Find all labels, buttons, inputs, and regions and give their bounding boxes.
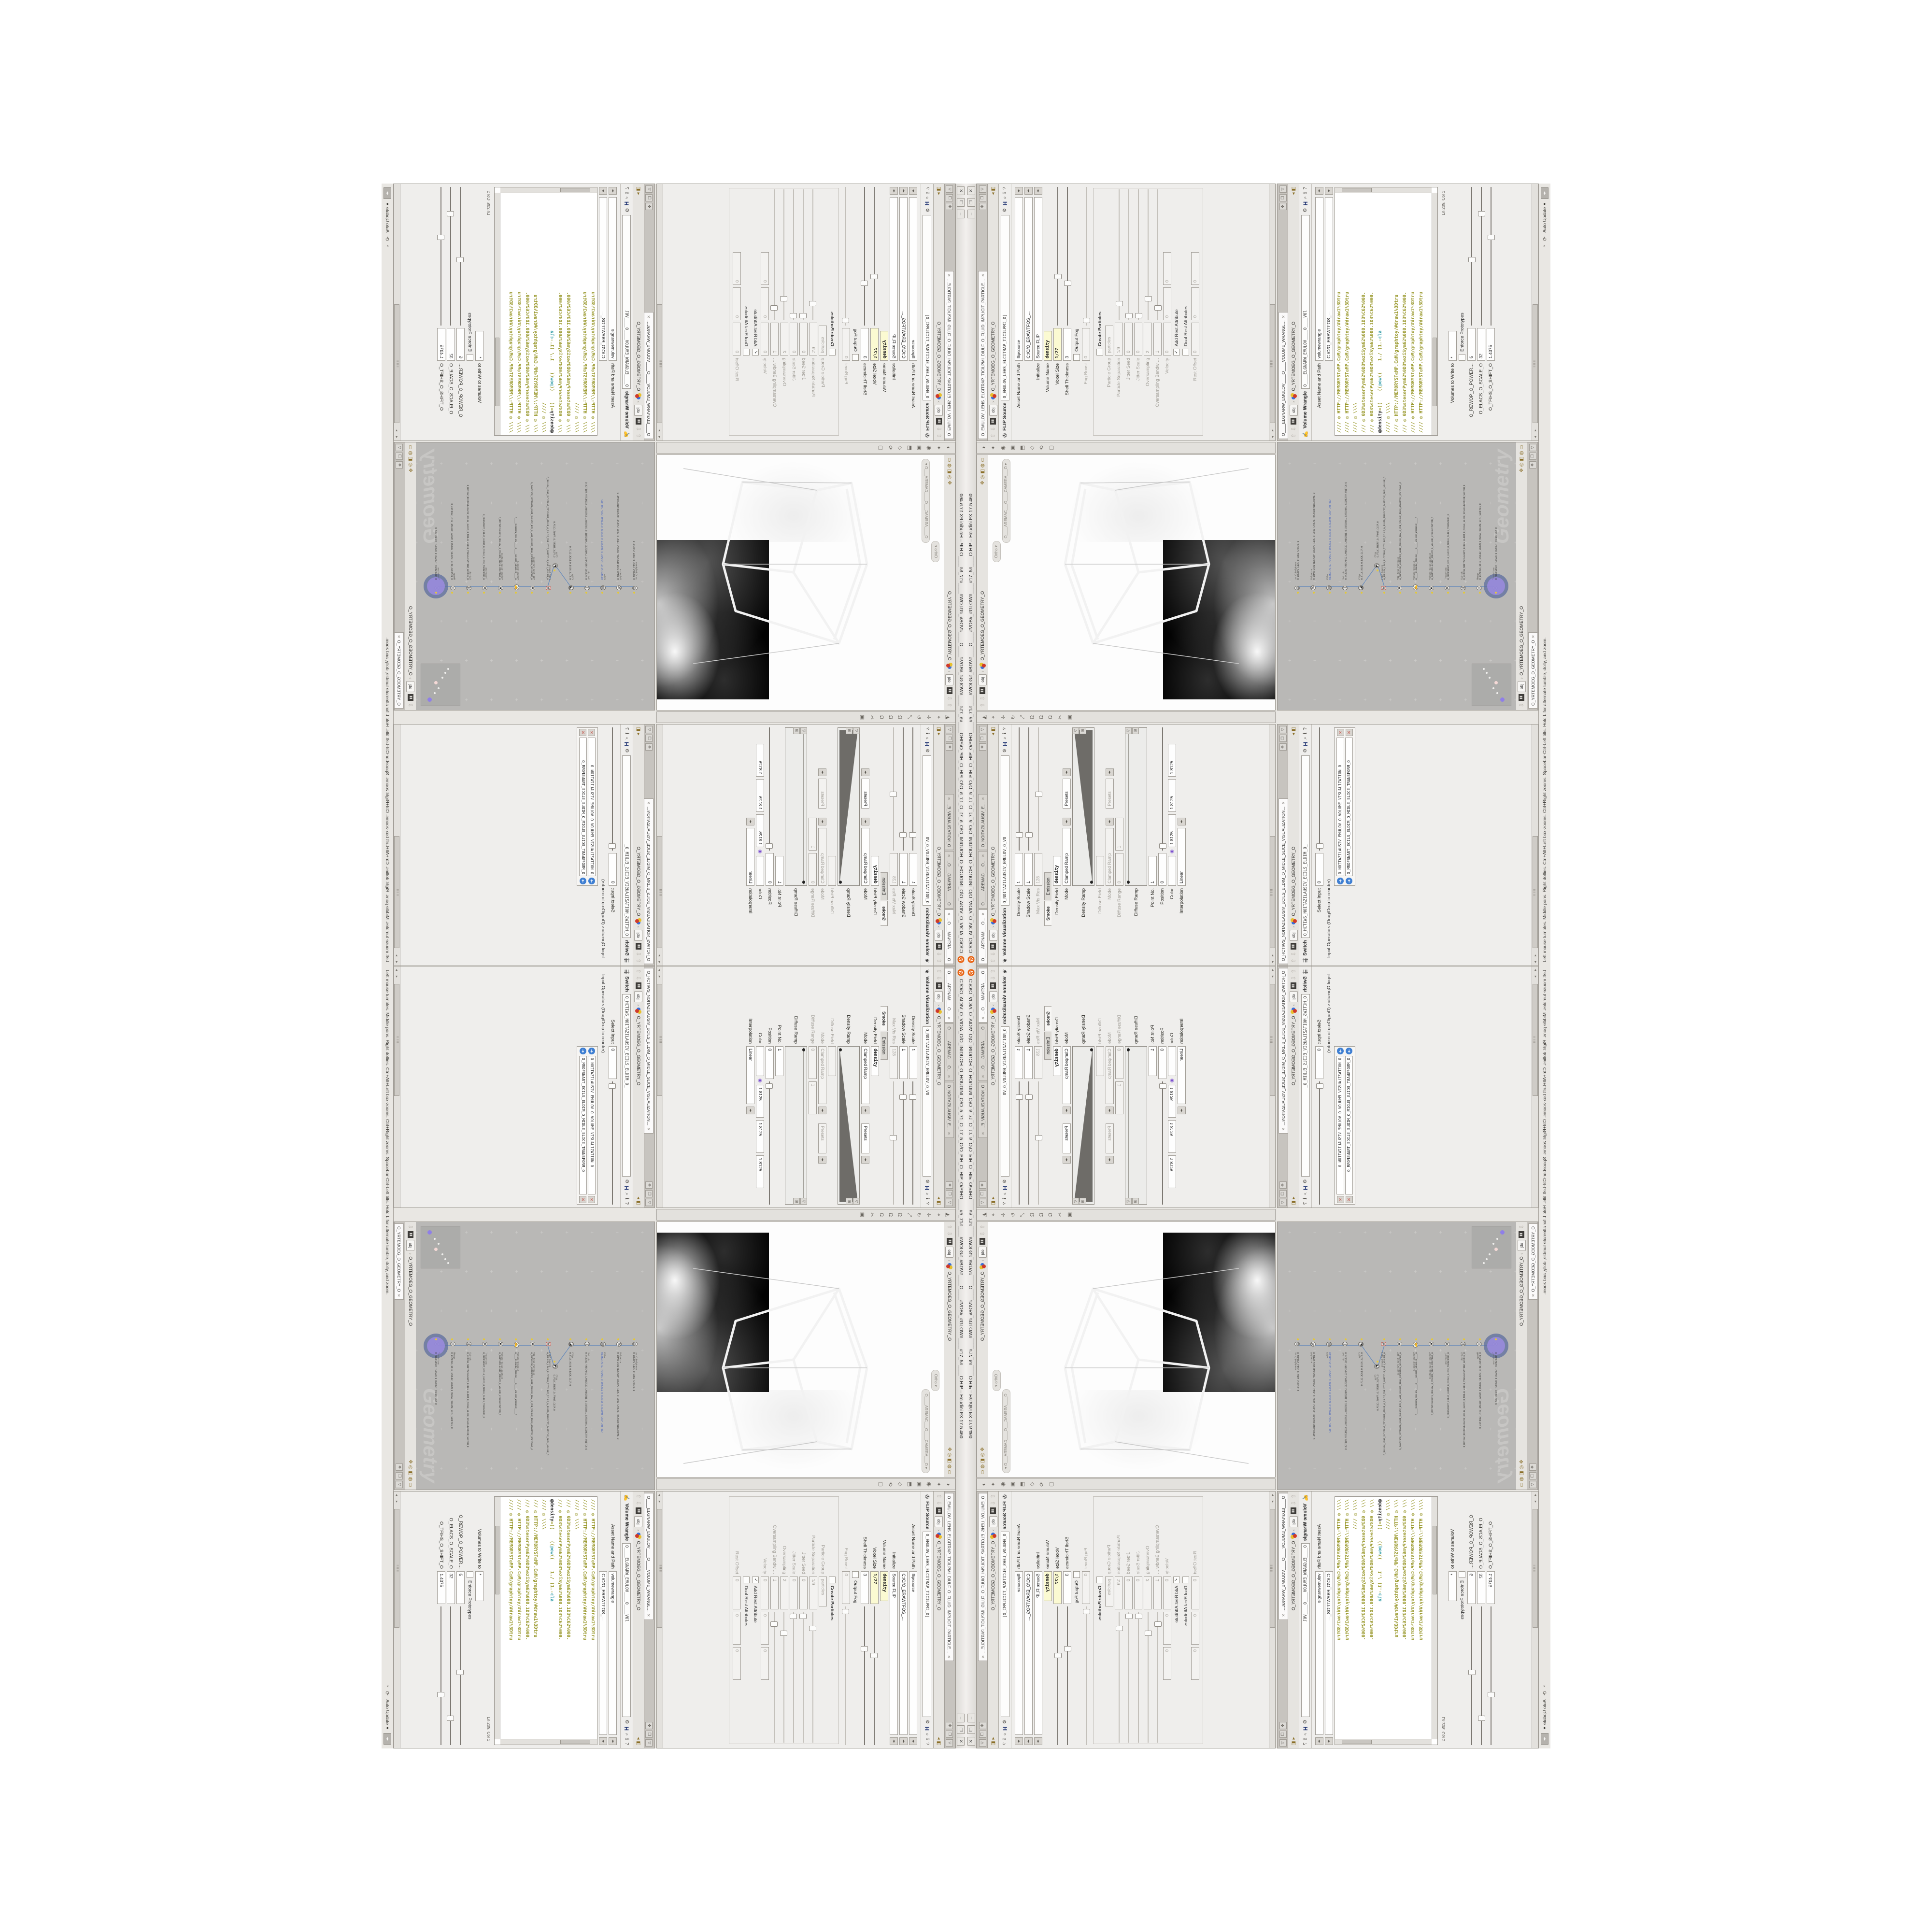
gear-icon[interactable]: ⚙ [624,208,629,213]
pane-horizontal-scrollbar[interactable]: ◂▸⠿⠿⠿ [394,966,400,1207]
color-component-field[interactable]: 1.8125 [756,1155,764,1188]
network-node[interactable]: ✇FLIP SourceO_EMULOV_LEHS_ELCITRAP_TICIL… [545,1342,552,1346]
pin-icon[interactable]: ✥ [645,743,653,751]
parameter-slider[interactable] [1135,189,1142,320]
toolbar-icon[interactable]: ✦ [990,445,996,450]
parameter-field[interactable]: 3 [1063,1571,1071,1604]
network-node[interactable]: ✇FLIP SourceO_EMULOV_LEHS_ELCITRAP_TICIL… [545,586,552,590]
parameter-field[interactable]: 1 [1115,1081,1123,1114]
nav-up-icon[interactable]: ⇧ [636,1494,641,1499]
parameter-field[interactable]: C:/O/O_ERAWTFOS_… [1325,197,1333,361]
breadcrumb-root[interactable]: obj [935,991,943,1002]
menu-pair-icon[interactable]: ◂▸ [1063,818,1071,825]
input-operator-field[interactable]: O_MROFSNART_ECILS_ELDIM_O_MIDLE_SLICE_TR… [1345,738,1353,876]
presets-menu[interactable]: Presets [861,779,869,809]
flipbook-icon[interactable]: ▮▮ [990,943,996,950]
nav-up-icon[interactable]: ⇧ [990,1494,996,1499]
tab-close-icon[interactable]: ✕ [947,854,952,857]
parameter-field[interactable]: 1 [909,853,917,886]
parameter-field[interactable]: Source FLIP [890,1571,898,1735]
flipbook-icon[interactable]: ▮▮ [980,687,985,694]
parameter-field[interactable]: Linear [1178,828,1186,886]
parameter-checkbox[interactable]: ✓ [752,349,759,355]
close-icon[interactable]: ✕ [967,186,975,195]
parameter-field[interactable]: 1 [1149,856,1157,886]
toolbar-icon[interactable]: ✛ [925,1212,932,1217]
parameter-field[interactable]: 1 [1115,818,1123,851]
pathbar-icons[interactable]: ◂◧ [937,186,942,195]
recook-icon[interactable]: ⟳ [384,1691,391,1695]
tab-close-icon[interactable]: ✕ [1531,635,1535,639]
network-toolbar-icons[interactable]: ✥◎◧◍▭ [1519,445,1524,472]
parameter-field[interactable]: 0 [1158,1046,1166,1079]
reorder-arrow-icon[interactable]: ➜ [588,1048,595,1054]
parameter-slider[interactable] [1025,727,1032,851]
recook-icon[interactable]: ⟳ [1542,1691,1548,1695]
parameter-field[interactable]: particles [1105,326,1113,355]
network-node[interactable]: ▤File8O.M03.PETS.TRI6ALS_O_55U.REG_O_GEN… [1326,585,1333,590]
menu-pair-icon[interactable]: ◂▸ [1178,818,1186,825]
node-path-field[interactable]: O_NOITAZILAUSIV_EMULOV_O_VO [923,755,932,906]
nav-up-icon[interactable]: ⇧ [1291,958,1296,963]
presets-menu[interactable]: Presets [818,779,826,809]
breadcrumb-root[interactable]: obj [635,1516,643,1527]
search-icon[interactable]: ⌕ [924,1193,930,1195]
network-node[interactable]: ❖VDB from PolygonsO_SNOGYLOP_YRTEMOEG_MO… [529,1342,536,1346]
color-component-field[interactable]: 1.8125 [1168,814,1176,847]
node-path-field[interactable]: O_HCTIWS_NOITAZILAUSIV_ECILS_ELDIM_O_ [1301,755,1310,938]
nav-up-icon[interactable]: ⇧ [1291,433,1296,438]
pane-maximize-icon[interactable]: ❒ [645,1190,653,1197]
viewport-pathbar-icons[interactable]: ✥◎◧◍▭ [947,1447,952,1475]
lamp-icon[interactable]: ◧ [937,186,942,191]
toolbar-icon[interactable]: ⌖ [991,716,997,719]
parameter-slider[interactable] [1064,187,1071,326]
parameter-field[interactable]: 0 [609,1046,617,1079]
parameter-field[interactable]: Source FLIP [1034,1571,1042,1735]
menu-pair-icon[interactable]: ◂▸ [861,768,869,776]
houdini-badge-icon[interactable]: H [1002,1186,1009,1190]
parameter-slider[interactable] [1125,1612,1132,1743]
search-icon[interactable]: ⌕ [1303,1733,1308,1736]
houdini-badge-icon[interactable]: H [1002,201,1009,206]
breadcrumb-root[interactable]: obj [979,1247,987,1258]
tab-close-icon[interactable]: ✕ [947,797,952,800]
color-wheel-icon[interactable]: ◉ [1169,850,1175,853]
pane-tab[interactable]: O____ELGNARW_EMULOV____O____VOLUME_WRANG… [1279,312,1288,439]
parameter-field[interactable]: 32 [447,328,455,361]
parameter-checkbox[interactable] [1182,349,1189,355]
parameter-field[interactable]: * [1449,1571,1457,1601]
pane-tab[interactable]: O____ELGNARW_EMULOV____O____VOLUME_WRANG… [1279,1493,1288,1620]
pane-maximize-icon[interactable]: ❒ [946,194,953,201]
breadcrumb-path[interactable]: O_YRTEMOEG_O_GEOMETRY_O [937,1541,941,1735]
ramp-buttons[interactable]: ▽⊞ [793,1198,807,1205]
breadcrumb-path[interactable]: O_YRTEMOEG_O_GEOMETRY_O [937,1016,941,1194]
menu-pair-icon[interactable]: ◂▸ [1106,1156,1114,1164]
toolbar-icon[interactable]: ▢ [878,445,884,450]
parameter-field[interactable]: Clamped Ramp [1106,1046,1114,1104]
nav-up-icon[interactable]: ⇧ [936,1494,942,1499]
pane-tab[interactable]: O_NOITAZILAUSIV_E…✕ [978,1082,987,1138]
parameter-field[interactable]: 0 [733,323,741,355]
tab-close-icon[interactable]: ✕ [647,801,651,805]
menu-pair-icon[interactable]: ◂▸ [1015,1737,1023,1745]
menu-pair-icon[interactable]: ◂▸ [818,1107,826,1114]
pane-menu-icon[interactable]: ▽ [979,726,986,733]
pane-menu-icon[interactable]: ▽ [1279,1199,1287,1206]
parameter-slider[interactable] [781,1612,788,1743]
tab-close-icon[interactable]: ✕ [981,1075,985,1078]
houdini-badge-icon[interactable]: H [624,1186,630,1190]
toolbar-icon[interactable]: ✂ [1057,715,1063,719]
nav-down-icon[interactable]: ⇩ [408,1224,413,1229]
parameter-field[interactable]: C:/O/O_ERAWTFOS_… [599,1571,607,1735]
houdini-badge-icon[interactable]: H [1302,1726,1309,1731]
lamp-icon[interactable]: ◧ [1291,1201,1296,1205]
parameter-field[interactable]: 0 [1191,1612,1199,1645]
houdini-badge-icon[interactable]: H [1002,1726,1009,1731]
parameter-checkbox[interactable] [1073,354,1080,361]
network-node[interactable]: ❦Volume VisualizationO_NOITAZILAUSIV_EMU… [1428,1342,1435,1346]
parameter-slider[interactable] [1035,1081,1042,1205]
parameter-field[interactable]: particles [1105,1577,1113,1606]
toolbar-icon[interactable]: ▣ [859,715,866,720]
gear-icon[interactable]: ⚙ [1002,1179,1008,1183]
help-icon[interactable]: ? [624,1202,629,1205]
pane-maximize-icon[interactable]: ❒ [1279,194,1287,201]
parameter-slider[interactable] [771,189,778,320]
toolbar-icon[interactable]: Ω [888,1213,894,1217]
scroll-left-icon[interactable]: ◂ [1291,1197,1296,1199]
pin-icon[interactable]: ✥ [946,743,953,751]
pathbar-icons[interactable]: ◂◧ [937,1197,942,1205]
pane-maximize-icon[interactable]: ❒ [1279,1190,1287,1197]
network-node[interactable]: ◍an CubeSphereO_EREHPS_EBUC_O_CUBE_SPHER… [1294,586,1301,590]
pane-menu-icon[interactable]: ▽ [396,1481,403,1488]
network-node[interactable]: ◪ClipO_PILC_KCAB_O_BACK_CLIP_O [1358,1342,1364,1347]
parameter-field[interactable]: Clamped Ramp [818,1046,826,1104]
pathbar-icons[interactable]: ◂◧ [636,1197,641,1205]
network-node[interactable]: ⇶SwitchO_HCTIWS_NOITAZILAUSIV_ECILS_ELDI… [465,586,472,590]
scroll-left-icon[interactable]: ◂ [1291,1737,1296,1740]
parameter-field[interactable]: 128 [1034,1046,1042,1079]
pin-icon[interactable]: ✥ [979,743,986,751]
pin-icon[interactable]: ✥ [396,461,403,469]
breadcrumb-path[interactable]: O_YRTEMOEG_O_GEOMETRY_O [980,1271,985,1445]
parameter-field[interactable]: 0 [799,1577,808,1609]
lamp-icon[interactable]: ◧ [991,727,996,731]
parameter-slider[interactable] [1154,189,1161,320]
input-operator-field[interactable]: O_NOITAZILAUSIV_EMULOV_O_VOLUME_VISUALIZ… [1336,1056,1344,1194]
gear-icon[interactable]: ⚙ [624,749,629,753]
parameter-slider[interactable] [771,1612,778,1743]
color-swatch[interactable] [756,1046,764,1076]
node-path-field[interactable]: O____ELGNARW_EMULOV____O____VOl [623,215,631,389]
toolbar-icon[interactable]: ▣ [916,445,923,450]
gear-icon[interactable]: ⚙ [1002,1719,1008,1724]
nav-down-icon[interactable]: ⇩ [990,952,996,956]
network-node[interactable]: ⌘PolyWireO_EMARFERIW_NOGYLOP_EREHPS_EBUC… [615,585,622,590]
pane-menu-icon[interactable]: ▽ [645,726,653,733]
network-node[interactable]: ❖VDB from PolygonsO_SNOGYLOP_YRTEMOEG_MO… [529,586,536,590]
parameter-slider[interactable] [891,727,897,851]
parameter-field[interactable]: C:/O/O_ERAWTFOS_… [1024,197,1033,361]
nav-down-icon[interactable]: ⇩ [1291,952,1296,956]
toolbar-icon[interactable]: ⤢ [906,1213,912,1217]
pathbar-icons[interactable]: ◂◧ [636,1737,641,1746]
parameter-field[interactable]: 1 [899,853,908,886]
pane-menu-icon[interactable]: ▽ [645,185,653,193]
menu-pair-icon[interactable]: ◂▸ [1178,1107,1186,1114]
flipbook-icon[interactable]: ▮▮ [1519,1231,1524,1238]
menu-pair-icon[interactable]: ◂▸ [1325,1737,1333,1745]
houdini-badge-icon[interactable]: H [624,742,630,746]
menu-pair-icon[interactable]: ◂▸ [746,1107,754,1114]
parameter-slider[interactable] [871,1606,878,1745]
pin-icon[interactable]: ✥ [396,1463,403,1471]
pane-menu-icon[interactable]: ▽ [946,1739,953,1747]
pane-menu-icon[interactable]: ▽ [946,1199,953,1206]
parameter-field[interactable]: 1.4375 [437,328,445,361]
scroll-left-icon[interactable]: ◂ [636,1737,641,1740]
toolbar-icon[interactable]: ✛ [1000,715,1007,719]
pathbar-icons[interactable]: ◂◧ [937,727,942,735]
parameter-field[interactable]: 0 [761,1577,769,1609]
parameter-field[interactable]: density [1053,1046,1061,1076]
breadcrumb-root[interactable]: obj [979,674,987,685]
scroll-left-icon[interactable]: ◂ [636,1197,641,1199]
parameter-field[interactable]: 0 [1191,252,1199,285]
lamp-icon[interactable]: ◧ [937,1201,942,1205]
parameter-field[interactable]: 0 [761,1647,769,1680]
help-icon[interactable]: ? [924,727,930,730]
parameter-slider[interactable] [791,1612,797,1743]
reorder-arrow-icon[interactable]: ➜ [1346,1048,1352,1054]
network-node[interactable]: ✇FLIP SourceO_EMULOV_LEHS_ELCITRAP_TICIL… [1380,586,1387,590]
pane-menu-icon[interactable]: ▽ [1279,185,1287,193]
breadcrumb-path[interactable]: O_YRTEMOEG_O_GEOMETRY_O [937,737,941,916]
pane-maximize-icon[interactable]: ❒ [979,1190,986,1197]
network-node[interactable]: ⊕MergeO_ECAFRUS_HTIW_EMULOV_EGREM_O_MERG… [449,1342,456,1346]
parameter-field[interactable]: 0 [766,1046,774,1079]
parameter-field[interactable]: particles [819,326,827,355]
parameter-field[interactable]: 32 [1477,1571,1485,1604]
tab-close-icon[interactable]: ✕ [981,1017,985,1020]
parameter-field[interactable]: 1/27 [870,1571,879,1604]
scroll-left-icon[interactable]: ◂ [937,1737,942,1740]
pathbar-icons[interactable]: ◂◧ [1291,1737,1296,1746]
ramp-buttons[interactable]: ▽⊞ [1125,1198,1139,1205]
breadcrumb-root[interactable]: obj [1518,681,1526,692]
network-node[interactable]: ✥TransformO_MROFSNART_ECILS_ELDIM_O_MIDL… [1444,586,1451,590]
network-node[interactable]: ⌘PolyWireO_EMARFERIW_NOGYLOP_EREHPS_EBUC… [1310,585,1317,590]
pane-menu-icon[interactable]: ▽ [1529,1481,1536,1488]
tab-close-icon[interactable]: ✕ [397,635,401,639]
menu-pair-icon[interactable]: ◂▸ [1063,1107,1071,1114]
network-node[interactable]: ⇶SwitchO_HCTIWS_YRTEMOEG_LANRETXE_LANRET… [1342,586,1349,590]
breadcrumb-path[interactable]: O_YRTEMOEG_O_GEOMETRY_O [636,737,641,916]
breadcrumb-path[interactable]: O_YRTEMOEG_O_GEOMETRY_O [1291,197,1296,391]
viewport-left-toolbar[interactable]: ◭⌖✛↻⤢ΩΩΩ✂▣ [656,1209,955,1221]
network-node[interactable]: ◩ClipO_PILC_TNORF_O_FRONT_CLIP_O [1374,1364,1380,1369]
pane-tab[interactable]: O_YRTEMOEG_O_GEOMETRY_O✕ [1528,632,1537,709]
nav-down-icon[interactable]: ⇩ [936,952,942,956]
network-overview-map[interactable] [421,664,460,706]
parameter-slider[interactable] [900,727,907,851]
nav-up-icon[interactable]: ⇧ [980,703,985,708]
pane-scroll-chip[interactable]: ◂▸ [1541,187,1548,199]
network-node[interactable]: ◪ClipO_PILC_KCAB_O_BACK_CLIP_O [1358,585,1364,590]
lamp-icon[interactable]: ◧ [1291,727,1296,731]
toolbar-icon[interactable]: Ω [879,1213,884,1217]
gear-icon[interactable]: ⚙ [1303,208,1308,213]
parameter-field[interactable]: 0 [1082,1571,1090,1604]
pathbar-icons[interactable]: ◂◧ [991,1197,996,1205]
pathbar-icons[interactable]: ◂◧ [991,186,996,195]
parameter-field[interactable]: 0 [809,853,817,886]
toolbar-icon[interactable]: ▣ [1066,1212,1073,1217]
breadcrumb-root[interactable]: obj [635,930,643,941]
reorder-arrow-icon[interactable]: ➜ [1337,878,1344,884]
close-icon[interactable]: ✕ [957,186,965,195]
pane-menu-icon[interactable]: ▽ [979,1739,986,1747]
parameter-field[interactable]: 1/27 [1053,328,1062,361]
search-icon[interactable]: ⌕ [624,196,629,199]
parameter-slider[interactable] [438,187,445,326]
presets-menu[interactable]: Presets [1063,1123,1071,1153]
parameter-field[interactable]: 1 [775,856,783,886]
node-path-field[interactable]: O_NOITAZILAUSIV_EMULOV_O_VO [1001,1026,1009,1177]
parameter-slider[interactable] [1468,1606,1475,1745]
flipbook-icon[interactable]: ▮▮ [936,943,942,950]
flipbook-icon[interactable]: ▮▮ [947,1238,952,1245]
nav-up-icon[interactable]: ⇧ [947,1224,952,1229]
lamp-icon[interactable]: ◧ [991,1201,996,1205]
network-canvas[interactable]: + + + + + + + + + + + + + + + + + + + + … [1278,1222,1516,1490]
nav-up-icon[interactable]: ⇧ [636,969,641,974]
viewport-left-toolbar[interactable]: ◭⌖✛↻⤢ΩΩΩ✂▣ [656,711,955,723]
toolbar-icon[interactable]: Ω [897,1213,903,1217]
search-icon[interactable]: ⌕ [1002,196,1008,199]
node-path-field[interactable]: O_NOITAZILAUSIV_EMULOV_O_VO [923,1026,932,1177]
parameter-field[interactable]: density [1044,331,1052,361]
parameter-field[interactable]: 0 [761,287,769,320]
help-icon[interactable]: ? [1303,187,1308,190]
pathbar-icons[interactable]: ◂◧ [636,186,641,195]
network-overview-map[interactable] [1472,1226,1511,1268]
scroll-left-icon[interactable]: ◂ [636,192,641,195]
menu-pair-icon[interactable]: ◂▸ [1063,768,1071,776]
flipbook-icon[interactable]: ▮▮ [936,418,942,425]
pathbar-icons[interactable]: ◂◧ [991,727,996,735]
toolbar-icon[interactable]: ▢ [1048,445,1054,450]
toolbar-icon[interactable]: ⬒ [907,1482,913,1487]
update-mode-selector[interactable]: Auto Update ▾ [1542,1699,1548,1729]
pin-icon[interactable]: ✥ [946,203,953,210]
pane-tab[interactable]: O_YRTEMOEG_O_GEOMETRY_O✕ [1528,1223,1537,1300]
toolbar-icon[interactable]: Ω [1038,1213,1044,1217]
tab-close-icon[interactable]: ✕ [647,1614,651,1617]
toolbar-icon[interactable]: ⬒ [1019,1482,1025,1487]
nav-down-icon[interactable]: ⇩ [990,426,996,431]
parameter-field[interactable]: C:/O/O_ERAWTFOS_… [1325,1571,1333,1735]
menu-pair-icon[interactable]: ◂▸ [1034,1737,1042,1745]
houdini-badge-icon[interactable]: H [1302,201,1309,206]
info-icon[interactable]: ℹ [1303,1738,1308,1740]
parameter-field[interactable]: Linear [1178,1046,1186,1104]
parameter-slider[interactable] [1035,727,1042,851]
parameter-field[interactable]: Linear [746,1046,754,1104]
gear-icon[interactable]: ⚙ [624,1719,629,1724]
color-component-field[interactable]: 1.8125 [1168,1085,1176,1118]
pane-horizontal-scrollbar[interactable]: ◂▸⠿⠿⠿ [657,184,663,440]
parameter-field[interactable]: Linear [746,828,754,886]
breadcrumb-path[interactable]: O_YRTEMOEG_O_GEOMETRY_O [1291,1016,1296,1194]
parameter-slider[interactable] [1478,187,1485,326]
pane-tab[interactable]: O_HCTIWS_NOITAZILAUSIV_ECILS_ELDIM_O_MID… [644,798,653,964]
parameter-slider[interactable] [767,1081,773,1205]
info-icon[interactable]: ℹ [1002,1198,1008,1200]
flipbook-icon[interactable]: ▮▮ [980,1238,985,1245]
lamp-icon[interactable]: ◧ [1291,186,1296,191]
flipbook-icon[interactable]: ▮▮ [636,982,641,989]
network-node[interactable]: ◩ClipO_PILC_TNORF_O_FRONT_CLIP_O [552,563,558,568]
close-icon[interactable]: ✕ [957,1737,965,1746]
toolbar-icon[interactable]: ▣ [859,1212,866,1217]
network-node[interactable]: ◍an CubeSphereO_EREHPS_EBUC_O_CUBE_SPHER… [631,1342,638,1346]
recook-icon[interactable]: ⟳ [384,237,391,241]
pane-horizontal-scrollbar[interactable]: ◂▸⠿⠿⠿ [394,1492,400,1748]
breadcrumb-path[interactable]: O_YRTEMOEG_O_GEOMETRY_O [980,487,985,661]
parameter-field[interactable]: 2 [1144,323,1152,355]
tab-close-icon[interactable]: ✕ [1281,801,1286,805]
parameter-slider[interactable] [1125,189,1132,320]
pane-maximize-icon[interactable]: ❒ [1529,453,1536,460]
node-path-field[interactable]: O_HCTIWS_NOITAZILAUSIV_ECILS_ELDIM_O_ [1301,994,1310,1177]
reorder-arrow-icon[interactable]: ➜ [1337,1048,1344,1054]
search-icon[interactable]: ⌕ [624,1733,629,1736]
help-icon[interactable]: ? [1002,187,1008,190]
parameter-field[interactable]: 1.4375 [437,1571,445,1604]
network-node[interactable]: ◩ClipO_PILC_TNORF_O_FRONT_CLIP_O [1374,563,1380,568]
folder-tab[interactable]: Emission [1044,1032,1051,1060]
pane-horizontal-scrollbar[interactable]: ◂▸⠿⠿⠿ [657,724,663,966]
breadcrumb-path[interactable]: O_YRTEMOEG_O_GEOMETRY_O [991,737,995,916]
parameter-field[interactable]: 0 [1163,1647,1171,1680]
pane-horizontal-scrollbar[interactable]: ◂▸⠿⠿⠿ [657,1492,663,1748]
parameter-checkbox[interactable] [467,354,473,361]
gear-icon[interactable]: ⚙ [924,1719,930,1724]
network-node[interactable]: ✥TransformO_MROFSNART_TLUSER_O_RESULT_TR… [1492,586,1499,590]
menu-pair-icon[interactable]: ◂▸ [818,768,826,776]
network-node[interactable]: ✍Volume WrangleO____ELGNARW_EMULOV____O_… [1412,584,1419,590]
breadcrumb-root[interactable]: obj [407,1240,415,1251]
tab-close-icon[interactable]: ✕ [647,315,651,318]
reorder-arrow-icon[interactable]: ➜ [1346,878,1352,884]
flipbook-icon[interactable]: ▮▮ [1291,943,1296,950]
remove-input-icon[interactable]: ✕ [1337,1196,1344,1203]
color-component-field[interactable]: 1.8125 [756,814,764,847]
parameter-field[interactable]: flipsource [1015,1571,1023,1735]
tab-close-icon[interactable]: ✕ [947,1017,952,1020]
search-icon[interactable]: ⌕ [924,737,930,739]
parameter-field[interactable]: 1/27 [1053,1571,1062,1604]
network-node[interactable]: ◍an CubeSphereO_EREHPS_EBUC_O_CUBE_SPHER… [631,586,638,590]
houdini-badge-icon[interactable]: H [924,742,931,746]
help-icon[interactable]: ? [624,187,629,190]
breadcrumb-path[interactable]: O_YRTEMOEG_O_GEOMETRY_O [991,1541,995,1735]
